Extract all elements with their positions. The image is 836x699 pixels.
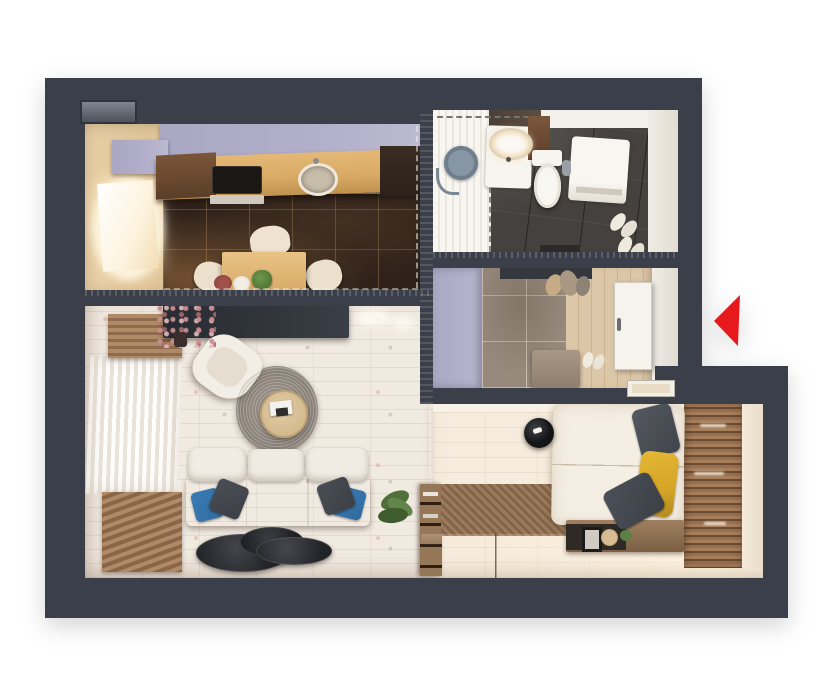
kitchen-window xyxy=(97,180,159,272)
slat-wall-light-1 xyxy=(700,424,726,427)
toilet-bowl xyxy=(534,164,561,208)
door-handle xyxy=(617,318,621,331)
wall-left xyxy=(45,78,85,618)
bed-platform-front xyxy=(421,534,571,578)
kitchen-glass-edge-dashed xyxy=(412,126,418,288)
oven-front xyxy=(210,195,264,204)
wood-slat-panel-lower xyxy=(102,492,182,572)
hallway-wardrobe xyxy=(433,268,482,388)
sideboard-picture-frame xyxy=(582,527,602,552)
cooktop xyxy=(212,166,262,194)
sofa-back-cushion-3 xyxy=(306,448,368,482)
pendant-lamp xyxy=(524,418,554,448)
ceiling-light-glint-1 xyxy=(356,310,390,326)
bedroom-wall-strip-right xyxy=(742,404,763,568)
apartment-floorplan xyxy=(0,0,836,699)
wall-duct-niche xyxy=(80,100,137,124)
wall-bottom xyxy=(45,578,788,618)
floorplan-canvas xyxy=(0,0,836,699)
slat-wall-light-2 xyxy=(694,472,724,475)
sofa-back-cushion-2 xyxy=(248,449,304,482)
entrance-doormat xyxy=(632,384,670,393)
kitchen-sink xyxy=(298,163,338,196)
ceiling-light-glint-2 xyxy=(392,317,414,329)
toilet-brush xyxy=(562,160,571,176)
wall-right-upper xyxy=(678,78,702,368)
kitchen-counter-dark-section xyxy=(156,152,216,199)
bathroom-wall-band-right xyxy=(648,108,678,252)
slat-accent-wall xyxy=(684,404,742,568)
sofa-back-cushion-1 xyxy=(188,448,246,482)
kitchen-faucet xyxy=(313,158,319,164)
shower-glass-dashed xyxy=(437,116,539,121)
window-curtains xyxy=(86,356,183,494)
sideboard-clock xyxy=(601,529,618,546)
bed-platform-deck xyxy=(441,484,569,536)
slat-wall-light-3 xyxy=(704,522,726,525)
wall-right-lower xyxy=(763,366,788,618)
hallway-bench xyxy=(532,350,580,388)
wall-hatch-kitchen-living xyxy=(85,290,433,296)
bookshelf-books-1 xyxy=(423,492,438,496)
bookshelf-books-2 xyxy=(423,514,438,518)
flower-vase xyxy=(174,332,187,347)
entrance-arrow-icon xyxy=(714,294,740,346)
nesting-table-small xyxy=(256,537,332,565)
vanity-faucet xyxy=(506,157,511,162)
shower-head xyxy=(444,146,478,180)
wall-hatch-bath-hall xyxy=(433,252,678,258)
magazine-dark xyxy=(276,407,289,416)
wall-hatch-divider xyxy=(420,110,433,404)
sideboard-succulent xyxy=(620,530,632,541)
